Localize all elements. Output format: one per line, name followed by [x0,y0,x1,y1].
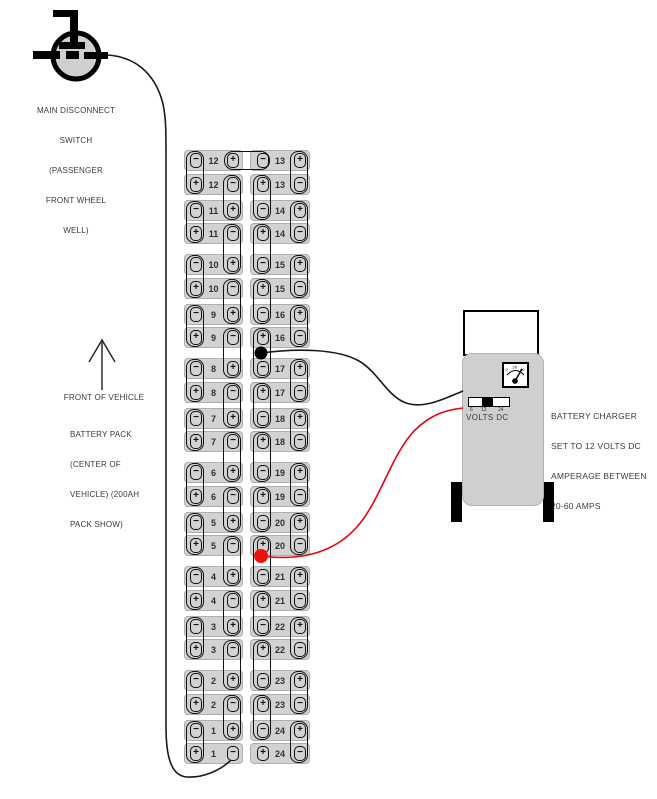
series-connector [253,487,271,532]
series-connector [223,487,241,532]
series-connector [290,359,308,402]
charger-caption: BATTERY CHARGER SET TO 12 VOLTS DC AMPER… [551,391,656,531]
series-connector [186,305,204,347]
series-connector [223,591,241,636]
charger-left-wheel [451,482,462,522]
charger-voltage-selector [468,397,510,407]
front-of-vehicle-label: FRONT OF VEHICLE [44,393,164,403]
series-connector [223,224,241,274]
ammeter-scale-0: 0 [506,367,509,372]
series-connector [253,328,271,378]
series-connector [290,305,308,347]
series-connector [253,279,271,324]
volts-dc-label: VOLTS DC [466,413,509,422]
series-connector [290,617,308,659]
charger-right-wheel [543,482,554,522]
disconnect-switch-icon [33,10,108,79]
ammeter-scale-20: 20 [513,365,518,370]
series-connector-top [224,151,270,170]
series-connector [186,671,204,714]
ammeter-face: 0 20 40 [504,364,527,386]
series-connector [186,513,204,555]
charger-handle [463,310,539,356]
series-connector [253,640,271,690]
series-connector [290,671,308,714]
series-connector [186,201,204,243]
series-connector [223,536,241,586]
series-connector [223,328,241,378]
series-connector [253,175,271,220]
charger-ammeter: 0 20 40 [502,362,529,388]
series-connector [253,695,271,740]
series-connector [223,175,241,220]
series-connector [253,383,271,428]
series-connector [186,567,204,610]
series-connector [223,432,241,482]
series-connector [290,721,308,763]
series-connector [253,591,271,636]
series-connector [253,224,271,274]
series-connector [290,409,308,451]
series-connector [223,279,241,324]
series-connector [253,536,271,586]
series-connector [186,721,204,763]
series-connector [290,201,308,243]
series-connector [186,359,204,402]
series-connector [223,695,241,740]
series-connector [223,383,241,428]
battery-terminal-minus: − [227,746,239,761]
series-connector [186,255,204,298]
series-connector [186,617,204,659]
series-connector [290,567,308,610]
disconnect-switch-label: MAIN DISCONNECT SWITCH (PASSENGER FRONT … [15,86,137,256]
battery-pack-label: BATTERY PACK (CENTER OF VEHICLE) (200AH … [70,410,180,550]
series-connector [186,409,204,451]
series-connector [186,463,204,506]
voltage-selector-knob [482,397,493,407]
front-arrow-icon [89,340,115,390]
series-connector [290,255,308,298]
series-connector [290,151,308,194]
series-connector [290,463,308,506]
series-connector [186,151,204,194]
series-connector [290,513,308,555]
series-connector [223,640,241,690]
series-connector [253,432,271,482]
wiring-diagram: MAIN DISCONNECT SWITCH (PASSENGER FRONT … [0,0,657,799]
